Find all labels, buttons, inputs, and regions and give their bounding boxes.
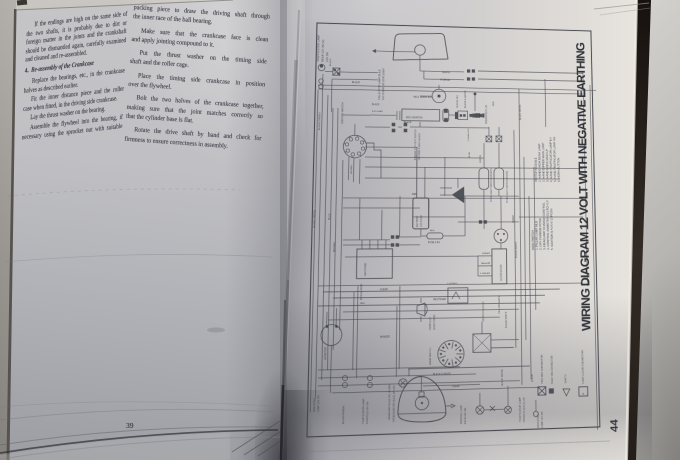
- svg-text:6 WAY LUCAR CONNECTOR: 6 WAY LUCAR CONNECTOR: [581, 350, 585, 384]
- svg-text:12V 5.5AH: 12V 5.5AH: [420, 215, 423, 227]
- svg-text:SPARKING PLUG: SPARKING PLUG: [485, 105, 488, 124]
- svg-text:WINKER: WINKER: [380, 336, 390, 339]
- svg-text:TAIL & STOP LAMP BULB: TAIL & STOP LAMP BULB: [377, 69, 381, 100]
- svg-text:FUSE 2.5A: FUSE 2.5A: [428, 241, 440, 244]
- svg-text:BATTERY: BATTERY: [416, 215, 419, 227]
- svg-text:BLACK GREEN: BLACK GREEN: [313, 210, 317, 228]
- svg-text:LAMP 12V 2W: LAMP 12V 2W: [317, 394, 321, 412]
- svg-text:6-15 OHM: 6-15 OHM: [372, 111, 383, 113]
- svg-text:PURPLE: PURPLE: [440, 79, 450, 82]
- svg-text:WHITE: WHITE: [442, 71, 450, 74]
- svg-text:12V 6/18W OR OSR 23/8W: 12V 6/18W OR OSR 23/8W: [381, 68, 385, 100]
- svg-text:RED: RED: [430, 230, 435, 232]
- svg-text:BLACK WHITE: BLACK WHITE: [515, 242, 518, 258]
- svg-text:BLACK & WHITE: BLACK & WHITE: [433, 372, 451, 376]
- svg-text:AMMETER: AMMETER: [324, 347, 327, 360]
- svg-text:BLACK: BLACK: [404, 121, 412, 124]
- svg-text:GREEN: GREEN: [480, 155, 482, 163]
- svg-text:MCO IGNITION: MCO IGNITION: [406, 116, 423, 119]
- svg-text:6. HORN BUTTON: 6. HORN BUTTON: [556, 158, 560, 182]
- svg-text:STOP LIGHT SWITCH (REAR): STOP LIGHT SWITCH (REAR): [506, 171, 509, 203]
- svg-text:BLUE: BLUE: [469, 152, 471, 158]
- svg-text:ALTERNATOR: ALTERNATOR: [500, 264, 503, 281]
- svg-text:BULB 12V 3W: BULB 12V 3W: [464, 407, 467, 424]
- svg-text:YELLOW: YELLOW: [481, 263, 491, 265]
- svg-text:BLACK GREEN: BLACK GREEN: [318, 112, 321, 130]
- svg-text:HEADLAMP BULB 12V 35/35W: HEADLAMP BULB 12V 35/35W: [388, 383, 392, 420]
- svg-text:BLACK WHITE: BLACK WHITE: [505, 311, 508, 328]
- svg-text:BROWN: BROWN: [333, 242, 336, 252]
- svg-text:RECTIFIER: RECTIFIER: [364, 263, 367, 276]
- svg-text:BLACK WHITE: BLACK WHITE: [519, 104, 522, 120]
- svg-text:K.GREEN: K.GREEN: [447, 283, 458, 285]
- svg-text:ON SIDE STAND BLACK: ON SIDE STAND BLACK: [418, 132, 421, 160]
- svg-text:TRAFFICATOR LAMP: TRAFFICATOR LAMP: [519, 397, 522, 422]
- svg-text:FRONT (2) 12V 2W: FRONT (2) 12V 2W: [366, 401, 369, 424]
- svg-text:RED: RED: [412, 194, 417, 196]
- svg-text:L.GREEN: L.GREEN: [480, 273, 490, 275]
- svg-text:SPEEDOMETER BULB 12V 2W: SPEEDOMETER BULB 12V 2W: [392, 385, 395, 422]
- svg-text:RED: RED: [493, 101, 495, 106]
- svg-text:TWO WAY CONNECTOR: TWO WAY CONNECTOR: [541, 354, 544, 384]
- svg-text:STOP LIGHT SWITCH (FRONT): STOP LIGHT SWITCH (FRONT): [490, 168, 493, 202]
- svg-text:BLACK: BLACK: [329, 58, 332, 66]
- svg-text:CLEAR: CLEAR: [380, 288, 388, 291]
- svg-text:HAND SWITCH: HAND SWITCH: [429, 347, 432, 365]
- svg-text:RED: RED: [360, 303, 365, 305]
- svg-text:BLUE: BLUE: [328, 213, 331, 220]
- svg-text:(LOW TONE): (LOW TONE): [433, 315, 436, 330]
- svg-text:5. IGNITION & AUX 6-12 POSN: 5. IGNITION & AUX 6-12 POSN: [549, 209, 553, 251]
- svg-text:SLEEVE 25/4: SLEEVE 25/4: [457, 94, 459, 108]
- svg-text:WIRING DIAGRAM 12 VOLT WITH NE: WIRING DIAGRAM 12 VOLT WITH NEGATIVE EAR…: [574, 42, 593, 331]
- svg-text:PARKING LAMP: PARKING LAMP: [460, 405, 463, 424]
- svg-text:FRONT 6-12V (2) 12V: FRONT 6-12V (2) 12V: [523, 397, 526, 422]
- svg-text:YELLOW WHITE: YELLOW WHITE: [498, 295, 501, 314]
- svg-text:BLACK: BLACK: [531, 374, 534, 382]
- svg-text:BROWN: BROWN: [351, 165, 353, 174]
- svg-text:L GREEN W: L GREEN W: [468, 128, 470, 141]
- svg-text:INDICATOR: INDICATOR: [537, 414, 540, 428]
- svg-text:BLACK: BLACK: [352, 81, 361, 84]
- svg-text:SWITCH MODULE: SWITCH MODULE: [482, 301, 485, 322]
- svg-text:BLACK: BLACK: [372, 103, 380, 106]
- svg-text:IGNITION SWITCH: IGNITION SWITCH: [340, 102, 344, 124]
- svg-text:BLACK & WHITE: BLACK & WHITE: [464, 90, 467, 108]
- svg-text:RECTIFIER: RECTIFIER: [433, 298, 446, 301]
- svg-text:6: 6: [582, 392, 584, 396]
- svg-text:LAMP 12V 2W: LAMP 12V 2W: [541, 411, 544, 428]
- svg-text:TRAFFICATOR LAMP: TRAFFICATOR LAMP: [362, 398, 366, 424]
- svg-text:GREEN: GREEN: [482, 253, 490, 255]
- svg-text:EARTH: EARTH: [564, 374, 567, 383]
- svg-text:HORN 12V: HORN 12V: [429, 317, 432, 330]
- svg-text:SNAP ON CONNECTOR: SNAP ON CONNECTOR: [551, 355, 554, 384]
- svg-text:44: 44: [609, 418, 621, 432]
- svg-text:BLACK/GREEN: BLACK/GREEN: [342, 405, 346, 424]
- svg-text:BLACK WHITE: BLACK WHITE: [501, 369, 504, 386]
